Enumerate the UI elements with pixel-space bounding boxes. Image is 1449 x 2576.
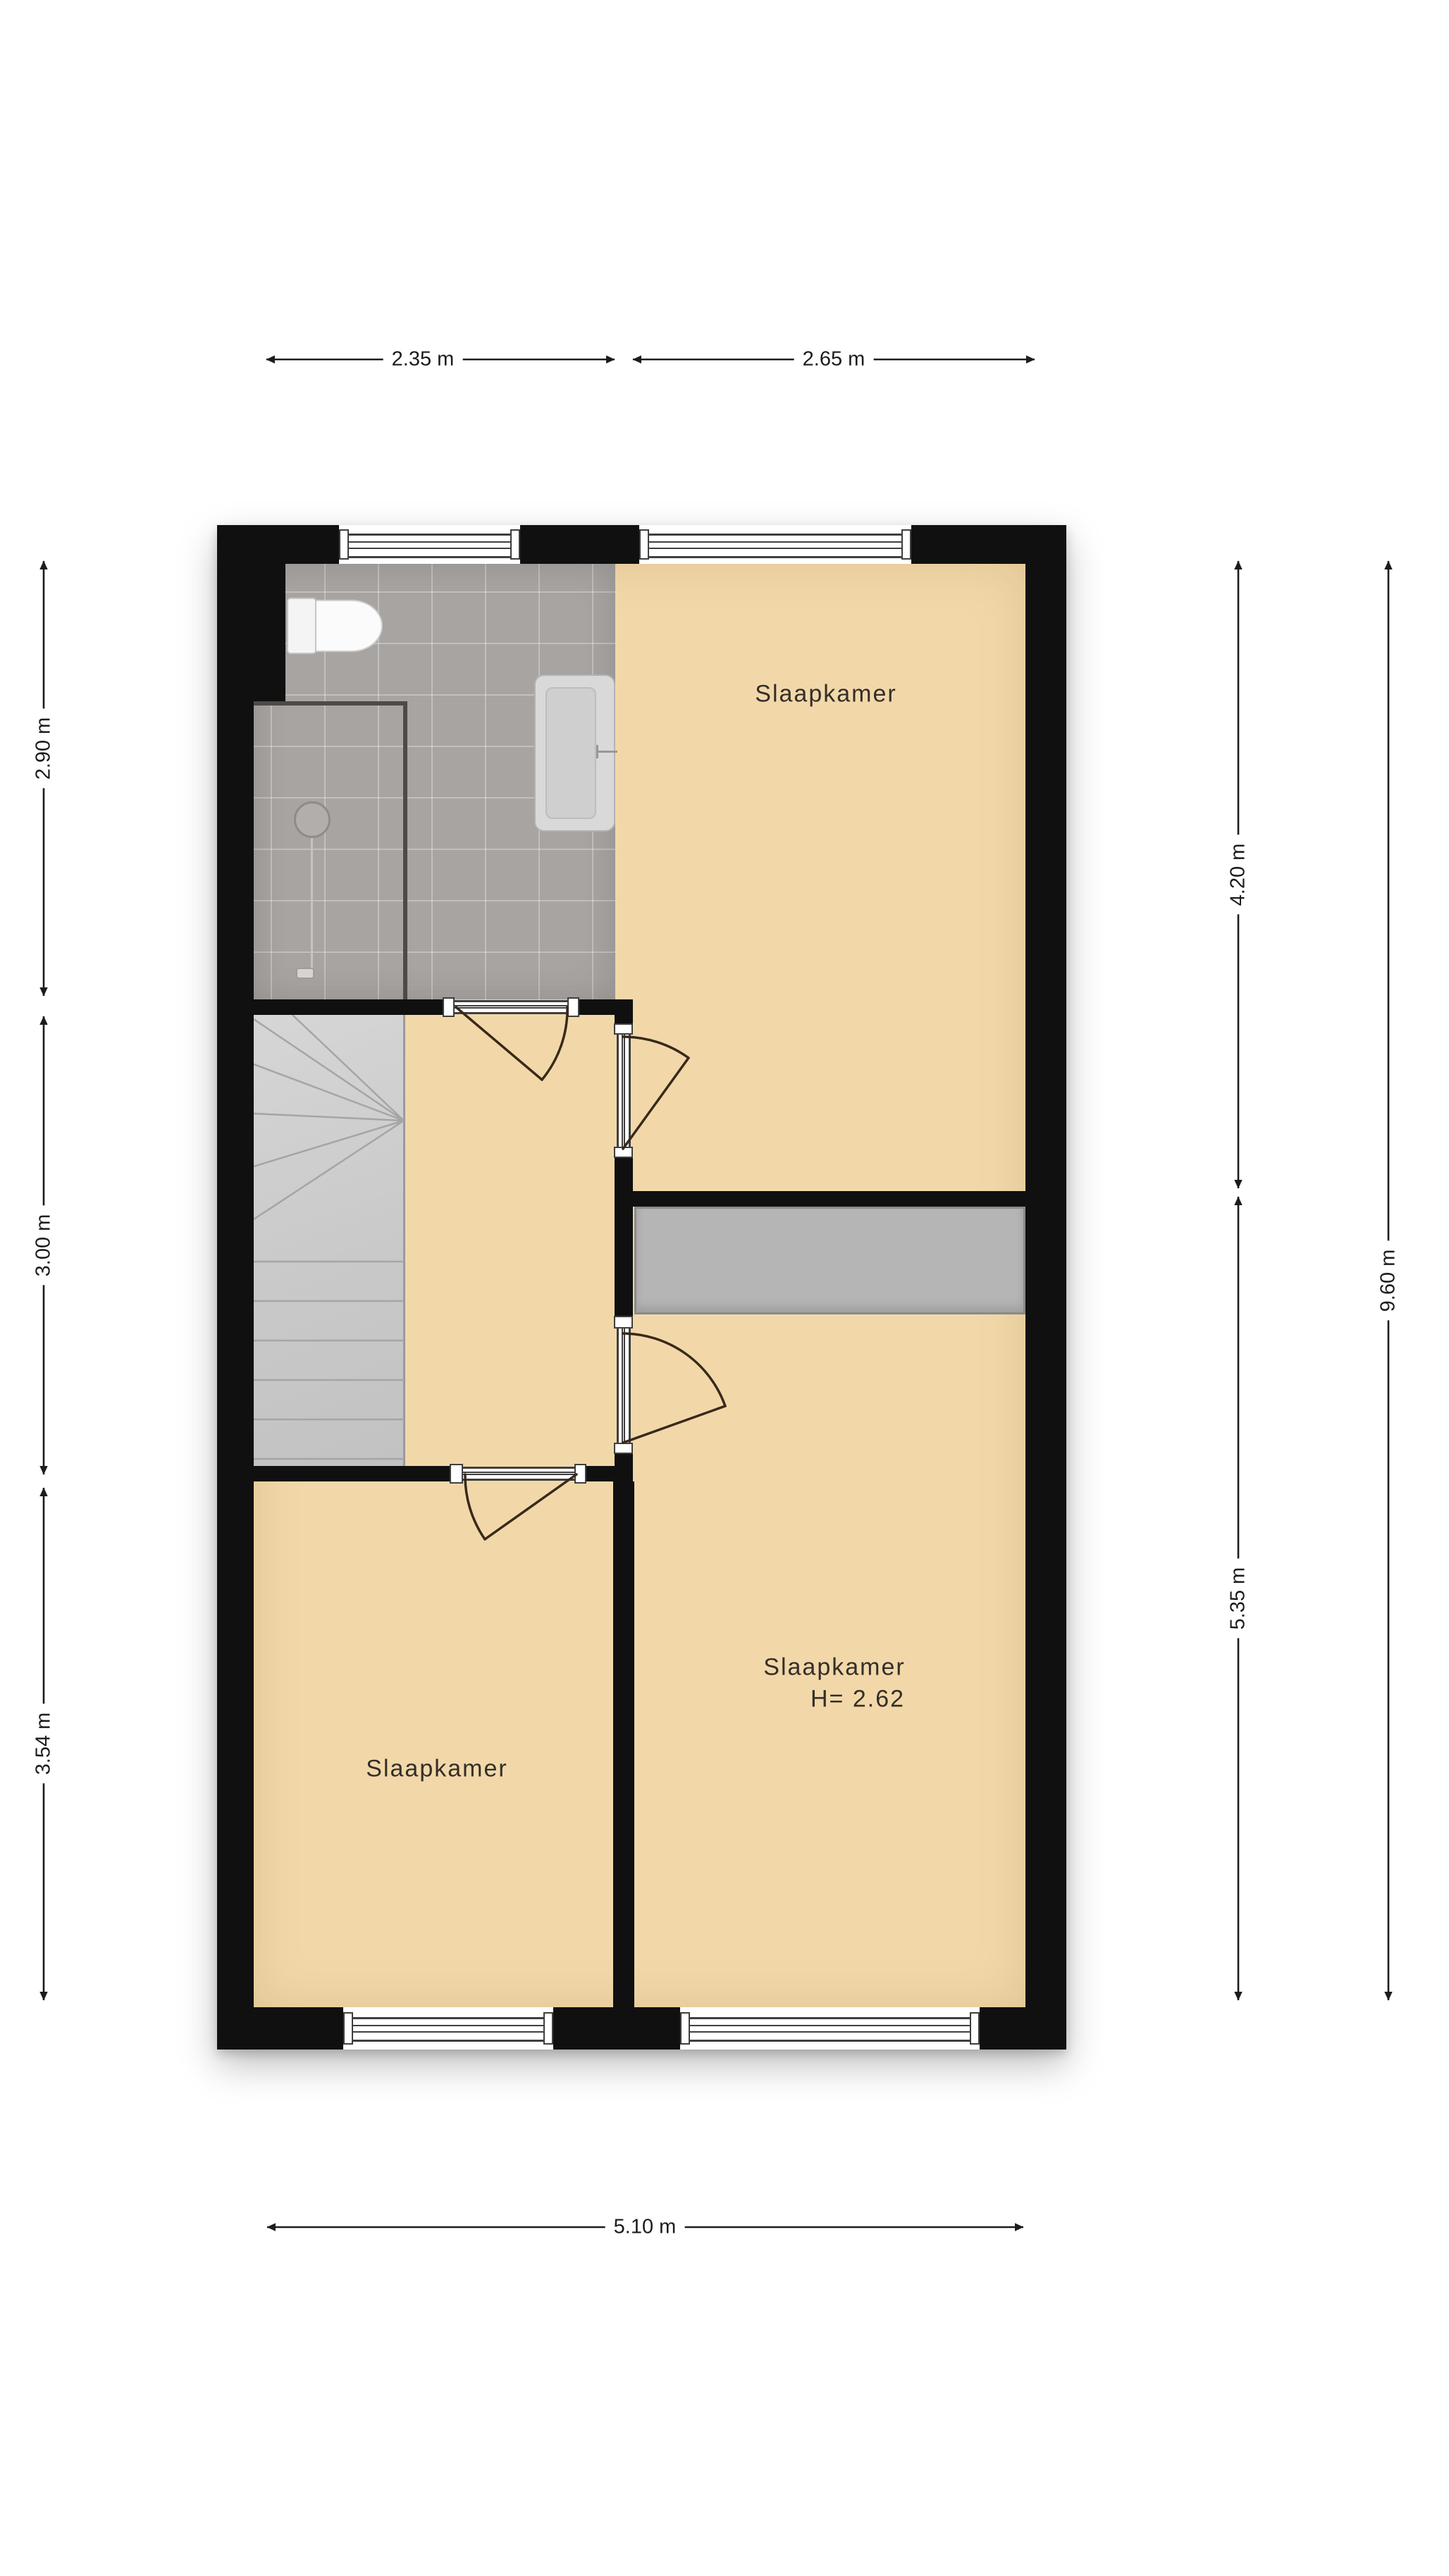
dim-left-1: 2.90 m — [31, 709, 57, 789]
floor-plan — [217, 525, 1066, 2050]
dim-right-2: 5.35 m — [1226, 1559, 1252, 1639]
dim-right-1: 4.20 m — [1226, 835, 1252, 915]
dim-left-3: 3.54 m — [31, 1704, 57, 1784]
door-leaf-bedroom-tr — [623, 1058, 689, 1149]
room-label-bedroom-top-right: Slaapkamer — [755, 681, 896, 708]
room-height-label: H= 2.62 — [810, 1686, 905, 1713]
door-leaf-bedroom-bl — [485, 1474, 576, 1539]
dim-top-right: 2.65 m — [794, 347, 874, 373]
door-leaf-bathroom — [456, 1007, 542, 1080]
door-arc-bedroom-br — [623, 1333, 725, 1406]
room-label-bedroom-bottom-left: Slaapkamer — [366, 1756, 507, 1783]
dim-top-left: 2.35 m — [383, 347, 463, 373]
door-leaf-bedroom-br — [623, 1406, 725, 1443]
door-arc-bathroom — [542, 1007, 567, 1080]
door-swing-arcs — [217, 525, 1066, 2050]
dim-bottom: 5.10 m — [605, 2214, 685, 2241]
door-arc-bedroom-bl — [465, 1474, 485, 1539]
room-label-bedroom-bottom-right: Slaapkamer — [763, 1654, 905, 1682]
dim-right-total: 9.60 m — [1376, 1241, 1402, 1321]
dim-left-2: 3.00 m — [31, 1206, 57, 1286]
floorplan-page: 2.35 m 2.65 m 5.10 m 2.90 m 3.00 m 3.54 … — [0, 0, 1449, 2576]
door-arc-bedroom-tr — [623, 1037, 689, 1058]
